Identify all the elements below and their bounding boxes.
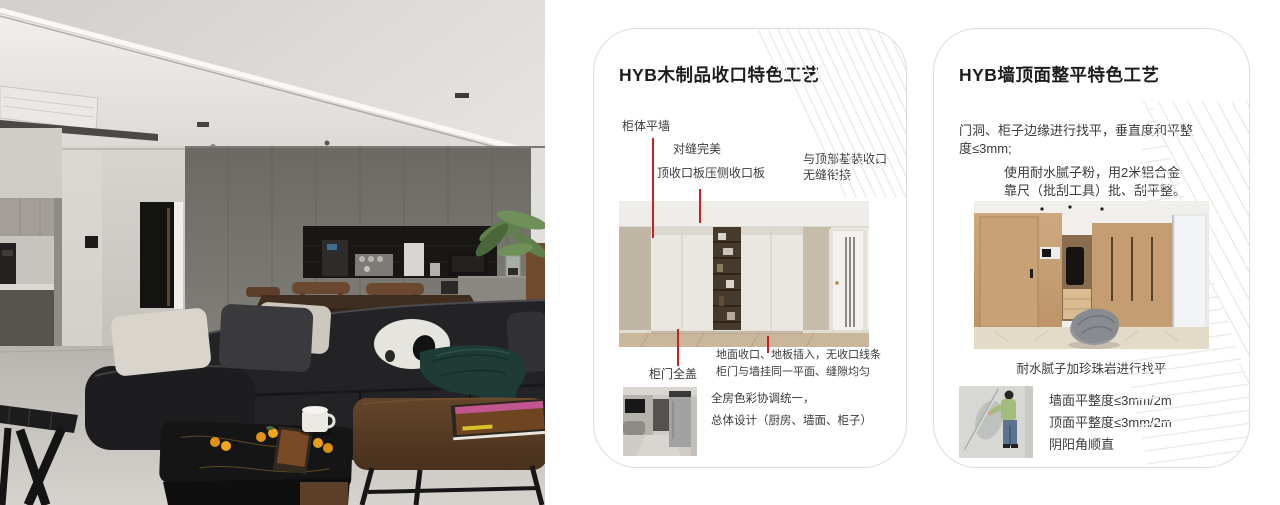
card2-small-image xyxy=(959,386,1033,458)
callout-cabinet-flush-wall: 柜体平墙 xyxy=(622,118,670,134)
magazine xyxy=(451,399,545,441)
cream-cushion xyxy=(110,307,212,377)
connector-line xyxy=(652,138,654,238)
dining-chair xyxy=(292,282,350,294)
living-room-photo xyxy=(0,0,545,505)
card1-small-image xyxy=(623,387,697,456)
white-coffee-machine xyxy=(404,243,424,276)
callout-full-cover-door: 柜门全盖 xyxy=(649,366,697,382)
design-summary: 全房色彩协调统一， 总体设计（厨房、墙面、柜子） xyxy=(711,389,872,433)
connector-line xyxy=(699,189,701,223)
tv xyxy=(625,399,645,413)
callout-top-panel: 顶收口板压侧收口板 xyxy=(657,165,765,181)
hanging-clothes xyxy=(1066,247,1084,285)
page: HYB木制品收口特色工艺 柜体平墙 对缝完美 顶收口板压侧收口板 与顶部基装收口… xyxy=(0,0,1280,505)
hatch-pattern xyxy=(756,29,906,197)
card2-main-image xyxy=(974,201,1209,349)
floor-joint-note: 地面收口、地板插入，无收口线条 柜门与墙挂同一平面、缝隙均匀 xyxy=(716,347,881,380)
dark-cushion xyxy=(218,304,313,373)
connector-line xyxy=(767,336,769,353)
dining-chair xyxy=(366,283,424,295)
card2-title: HYB墙顶面整平特色工艺 xyxy=(959,62,1159,87)
light-switch xyxy=(85,236,98,248)
connector-line xyxy=(677,329,679,366)
card1-main-image xyxy=(619,201,869,347)
interior-door xyxy=(829,229,867,333)
white-door xyxy=(1174,215,1206,331)
card-wall-leveling-craft: HYB墙顶面整平特色工艺 门洞、柜子边缘进行找平，垂直度和平整 度≤3mm; 使… xyxy=(933,28,1250,468)
wood-door xyxy=(980,217,1038,327)
card-wood-finish-craft: HYB木制品收口特色工艺 柜体平墙 对缝完美 顶收口板压侧收口板 与顶部基装收口… xyxy=(593,28,907,468)
callout-perfect-seam: 对缝完美 xyxy=(673,141,721,157)
